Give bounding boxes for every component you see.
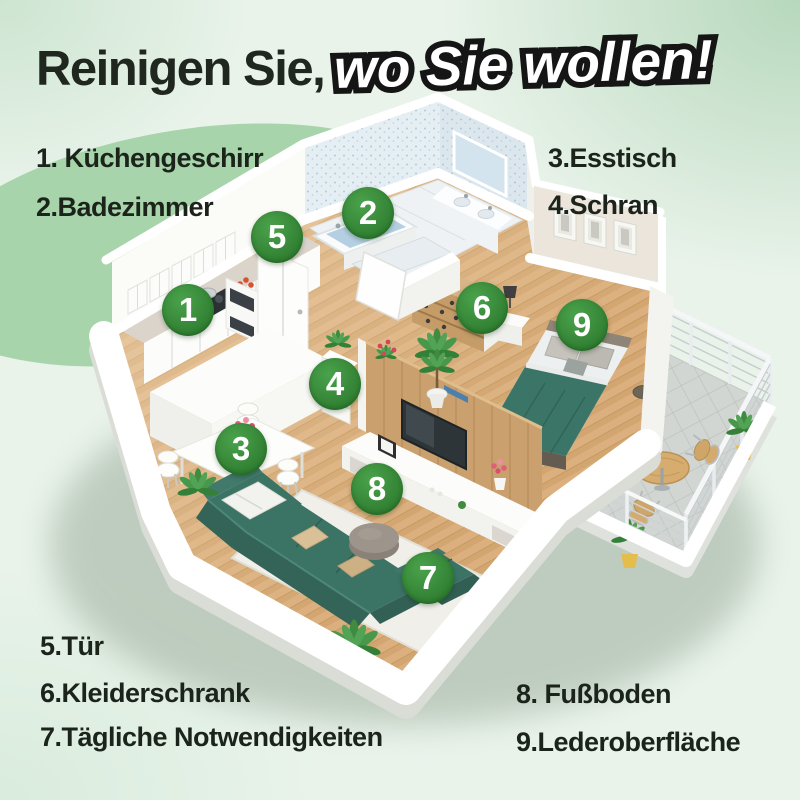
marker-badge-2: 2 <box>342 187 394 239</box>
legend-item-1: 1. Küchengeschirr <box>36 143 263 174</box>
marker-badge-4: 4 <box>309 358 361 410</box>
marker-badge-8: 8 <box>351 463 403 515</box>
door-handle-icon <box>298 310 303 315</box>
marker-badge-1: 1 <box>162 284 214 336</box>
legend-item-3: 3.Esstisch <box>548 143 677 174</box>
legend-item-7: 7.Tägliche Notwendigkeiten <box>40 722 383 753</box>
legend-item-2: 2.Badezimmer <box>36 192 213 223</box>
legend-item-5: 5.Tür <box>40 631 104 662</box>
pouf <box>349 523 399 560</box>
legend-item-4: 4.Schran <box>548 190 658 221</box>
legend-item-9: 9.Lederoberfläche <box>516 727 740 758</box>
sink <box>478 210 494 219</box>
headline-part1: Reinigen Sie, <box>36 42 324 96</box>
sink <box>454 198 470 207</box>
marker-badge-9: 9 <box>556 299 608 351</box>
marker-badge-7: 7 <box>402 552 454 604</box>
poster: Reinigen Sie,wo Sie wollen! 1. Küchenges… <box>0 0 800 800</box>
marker-badge-6: 6 <box>456 282 508 334</box>
headline: Reinigen Sie,wo Sie wollen! <box>36 34 713 98</box>
marker-badge-5: 5 <box>251 211 303 263</box>
marker-badge-3: 3 <box>215 423 267 475</box>
picture-frame-icon <box>614 220 636 255</box>
headline-part2: wo Sie wollen! <box>333 27 713 101</box>
legend-item-8: 8. Fußboden <box>516 679 671 710</box>
legend-item-6: 6.Kleiderschrank <box>40 678 250 709</box>
